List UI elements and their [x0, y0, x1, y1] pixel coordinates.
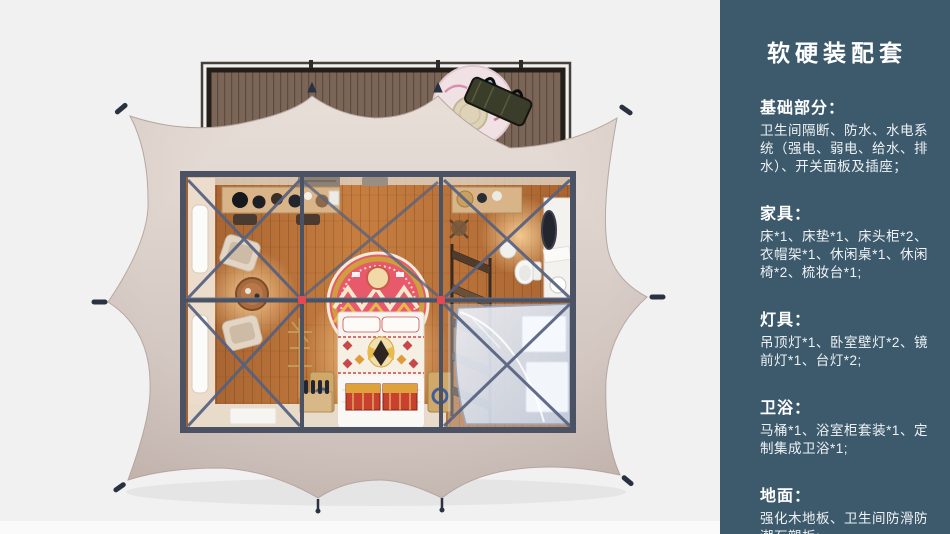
toilet	[515, 260, 541, 284]
bed	[338, 312, 424, 428]
section-basics: 基础部分： 卫生间隔断、防水、水电系统（强电、弱电、给水、排水）、开关面板及插座…	[760, 94, 928, 176]
section-heading: 卫浴：	[760, 394, 928, 418]
cup	[304, 192, 312, 200]
hat	[253, 196, 266, 209]
section-furniture: 家具： 床*1、床垫*1、床头柜*2、衣帽架*1、休闲桌*1、休闲椅*2、梳妆台…	[760, 200, 928, 282]
section-body: 床*1、床垫*1、床头柜*2、衣帽架*1、休闲桌*1、休闲椅*2、梳妆台*1;	[760, 228, 928, 282]
room-interior	[183, 174, 573, 430]
kettle	[289, 195, 302, 208]
sidebar: 软硬装配套 基础部分： 卫生间隔断、防水、水电系统（强电、弱电、给水、排水）、开…	[720, 0, 950, 534]
desk-chair	[296, 214, 320, 225]
frame-connector	[298, 296, 306, 304]
hat	[232, 192, 248, 208]
section-heading: 家具：	[760, 200, 928, 224]
pillow	[343, 317, 380, 332]
section-body: 马桶*1、浴室柜套装*1、定制集成卫浴*1;	[760, 422, 928, 458]
section-flooring: 地面： 强化木地板、卫生间防滑防潮石塑板;	[760, 482, 928, 534]
bottom-strip	[0, 521, 720, 534]
page-title: 软硬装配套	[746, 34, 928, 68]
dressing-mirror	[542, 211, 556, 249]
section-body: 吊顶灯*1、卧室壁灯*2、镜前灯*1、台灯*2;	[760, 334, 928, 370]
ground-shadow	[126, 478, 626, 506]
bath-shelf	[522, 316, 566, 352]
x-leg-chair	[450, 220, 468, 238]
tent-floorplan-illustration	[0, 0, 720, 534]
round-table	[236, 278, 268, 310]
section-bathroom: 卫浴： 马桶*1、浴室柜套装*1、定制集成卫浴*1;	[760, 394, 928, 458]
desk-chair	[233, 214, 257, 225]
section-body: 强化木地板、卫生间防滑防潮石塑板;	[760, 510, 928, 534]
pillow	[382, 317, 419, 332]
section-body: 卫生间隔断、防水、水电系统（强电、弱电、给水、排水）、开关面板及插座；	[760, 122, 928, 176]
section-heading: 灯具：	[760, 306, 928, 330]
section-heading: 基础部分：	[760, 94, 928, 118]
page: 软硬装配套 基础部分： 卫生间隔断、防水、水电系统（强电、弱电、给水、排水）、开…	[0, 0, 950, 534]
floorplan-canvas	[0, 0, 720, 534]
bed-ornament	[368, 337, 394, 367]
section-lighting: 灯具： 吊顶灯*1、卧室壁灯*2、镜前灯*1、台灯*2;	[760, 306, 928, 370]
frame-connector	[437, 296, 445, 304]
section-heading: 地面：	[760, 482, 928, 506]
